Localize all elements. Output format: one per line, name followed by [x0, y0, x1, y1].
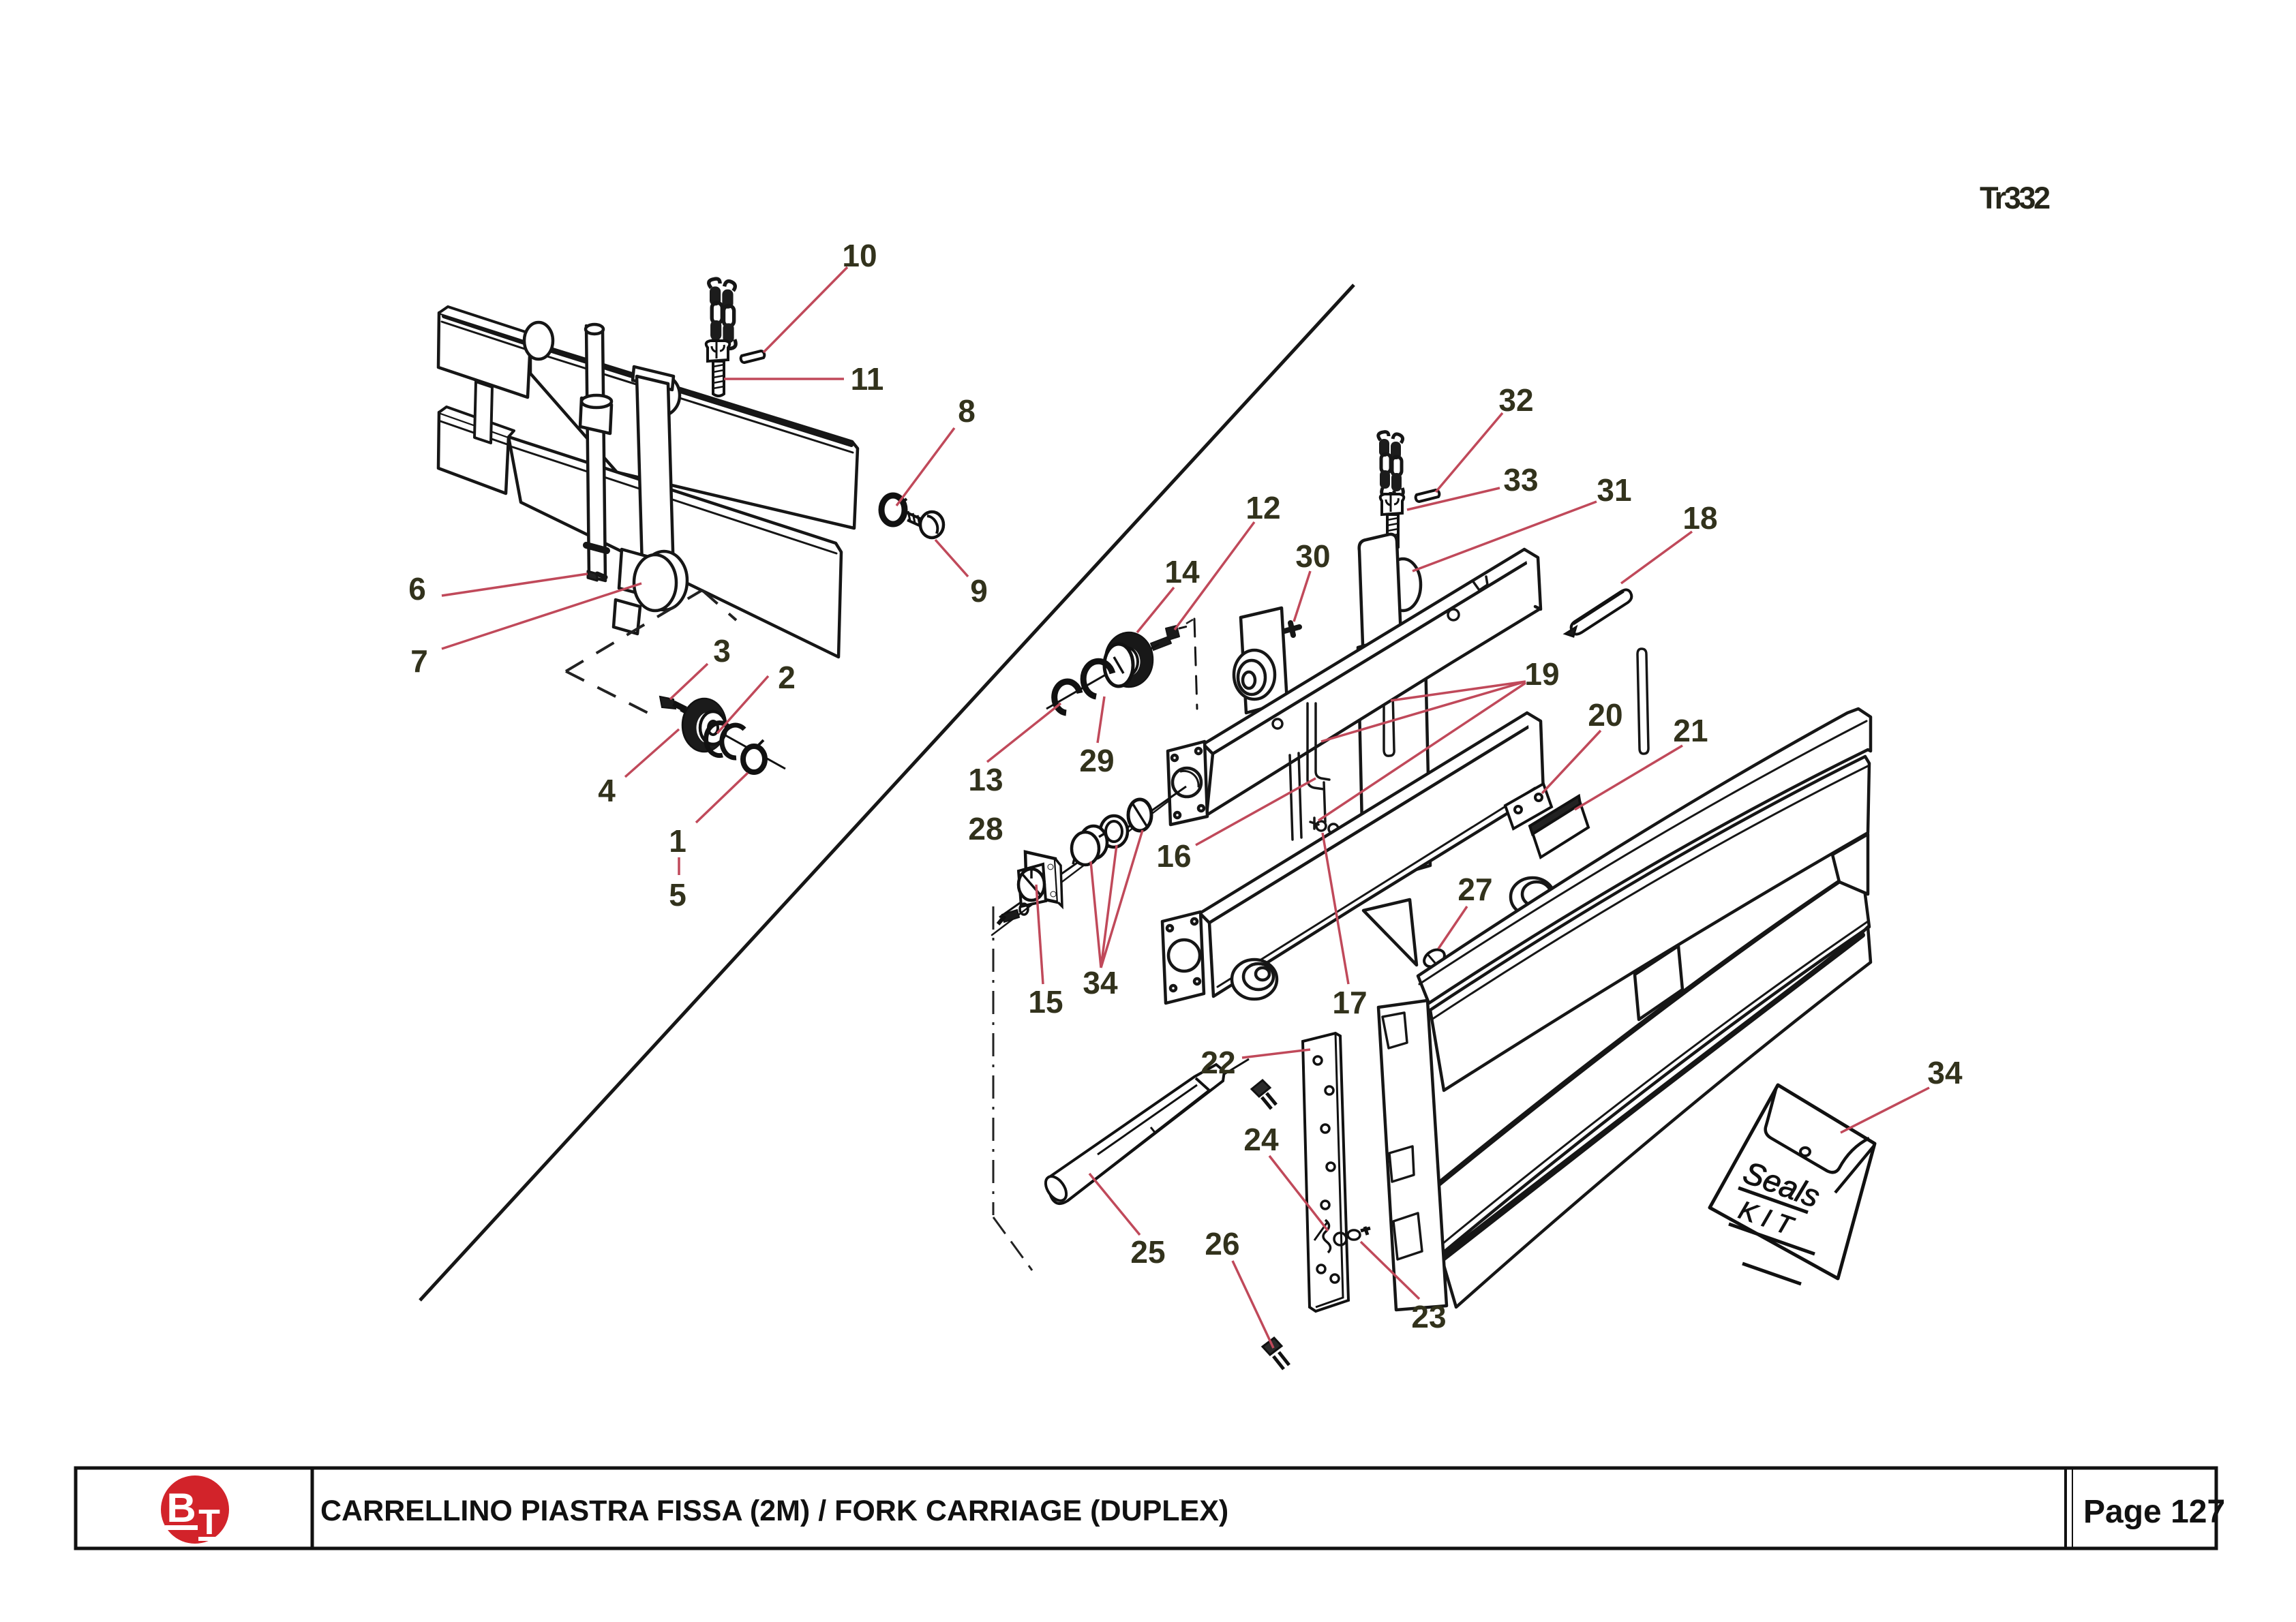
- svg-text:CARRELLINO PIASTRA FISSA (2M): CARRELLINO PIASTRA FISSA (2M) / FORK CAR…: [320, 1495, 1228, 1527]
- svg-text:33: 33: [1503, 462, 1538, 498]
- svg-text:13: 13: [968, 762, 1003, 797]
- svg-text:10: 10: [842, 238, 877, 273]
- svg-text:19: 19: [1524, 656, 1559, 692]
- svg-text:T: T: [198, 1503, 220, 1542]
- svg-text:16: 16: [1156, 838, 1191, 874]
- svg-text:31: 31: [1597, 472, 1631, 508]
- svg-text:30: 30: [1295, 538, 1330, 574]
- svg-text:32: 32: [1498, 382, 1533, 418]
- svg-text:3: 3: [713, 633, 731, 669]
- svg-text:24: 24: [1243, 1122, 1279, 1157]
- svg-text:28: 28: [968, 811, 1003, 846]
- svg-text:8: 8: [958, 393, 976, 429]
- svg-text:12: 12: [1245, 490, 1280, 525]
- svg-text:2: 2: [778, 660, 796, 695]
- svg-text:29: 29: [1079, 743, 1114, 778]
- svg-text:23: 23: [1411, 1299, 1446, 1334]
- svg-text:B: B: [166, 1485, 196, 1531]
- svg-text:20: 20: [1588, 697, 1622, 733]
- svg-text:27: 27: [1457, 872, 1492, 907]
- svg-text:15: 15: [1028, 984, 1063, 1020]
- svg-text:34: 34: [1083, 965, 1118, 1000]
- svg-text:5: 5: [669, 877, 686, 913]
- svg-text:18: 18: [1682, 500, 1717, 536]
- svg-text:7: 7: [410, 643, 428, 679]
- svg-text:21: 21: [1673, 713, 1708, 748]
- svg-text:4: 4: [598, 773, 616, 808]
- svg-text:22: 22: [1200, 1045, 1235, 1080]
- svg-text:17: 17: [1332, 985, 1367, 1020]
- svg-text:9: 9: [970, 573, 988, 609]
- svg-text:1: 1: [669, 823, 686, 859]
- svg-text:6: 6: [408, 571, 426, 607]
- svg-text:11: 11: [851, 361, 884, 397]
- svg-text:25: 25: [1130, 1234, 1165, 1270]
- svg-text:Tr332: Tr332: [1980, 181, 2051, 215]
- svg-text:34: 34: [1927, 1055, 1963, 1090]
- svg-text:Page 127: Page 127: [2083, 1494, 2225, 1530]
- svg-text:14: 14: [1164, 554, 1200, 590]
- svg-text:26: 26: [1205, 1226, 1239, 1261]
